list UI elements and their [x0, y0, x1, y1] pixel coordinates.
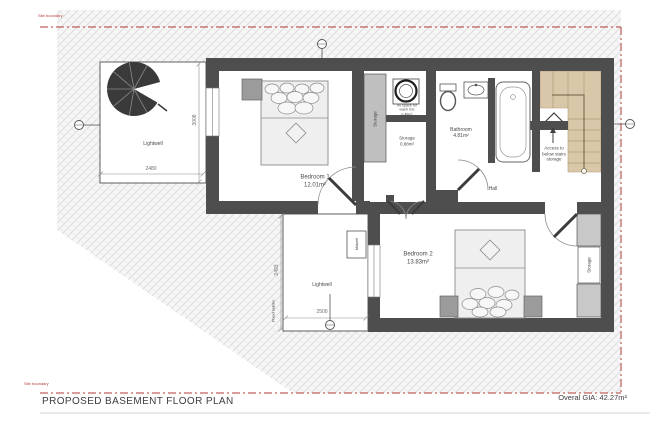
bathroom-label: Bathroom 4.81m²	[450, 127, 472, 140]
boundary-label-top: Site boundary	[38, 13, 63, 18]
understairs-label: Access to below stairs storage	[542, 146, 566, 163]
boundary-label-bottom: Site boundary	[24, 381, 49, 386]
bedroom2-storage-label: Storage	[587, 257, 592, 273]
bedroom1-label: Bedroom 1 12.01m²	[300, 175, 329, 190]
hall-label: Hall	[489, 186, 498, 192]
matwell-label: Matwell	[355, 238, 359, 250]
bedroom1-name: Bedroom 1	[300, 175, 329, 183]
storage-room-label: Storage 0.88m²	[399, 135, 415, 146]
toilet-icon	[440, 84, 456, 111]
dim-2493: 2493	[274, 264, 280, 275]
gia-total-label: Overal GIA: 42.27m²	[558, 393, 627, 402]
fixed-ladder-label: Fixed ladder	[271, 300, 276, 322]
bathtub-icon	[496, 82, 530, 162]
wash-space-label: Av space for wash m/c 0.48m²	[397, 103, 417, 116]
upper-lightwell-label: Lightwell	[143, 141, 162, 147]
washing-machine-icon	[393, 79, 419, 104]
dim-3008: 3008	[192, 114, 198, 125]
plan-graphics	[0, 0, 656, 422]
bedroom1-area: 12.01m²	[300, 182, 329, 190]
bedroom2-name: Bedroom 2	[403, 252, 432, 260]
bathroom-area: 4.81m²	[450, 133, 472, 139]
basin-icon	[464, 82, 488, 98]
dim-2480: 2480	[145, 166, 156, 172]
floor-plan-page: Lightwell Lightwell Bedroom 1 12.01m² Be…	[0, 0, 656, 422]
lower-lightwell-label: Lightwell	[312, 282, 331, 288]
closet-storage-label: Storage	[373, 111, 378, 127]
bedroom2-area: 13.83m²	[403, 259, 432, 267]
dim-2500: 2500	[316, 309, 327, 315]
storage-room-name: Storage	[399, 135, 415, 141]
storage-room-area: 0.88m²	[399, 141, 415, 147]
bedroom2-label: Bedroom 2 13.83m²	[403, 252, 432, 267]
page-title: PROPOSED BASEMENT FLOOR PLAN	[42, 396, 234, 409]
